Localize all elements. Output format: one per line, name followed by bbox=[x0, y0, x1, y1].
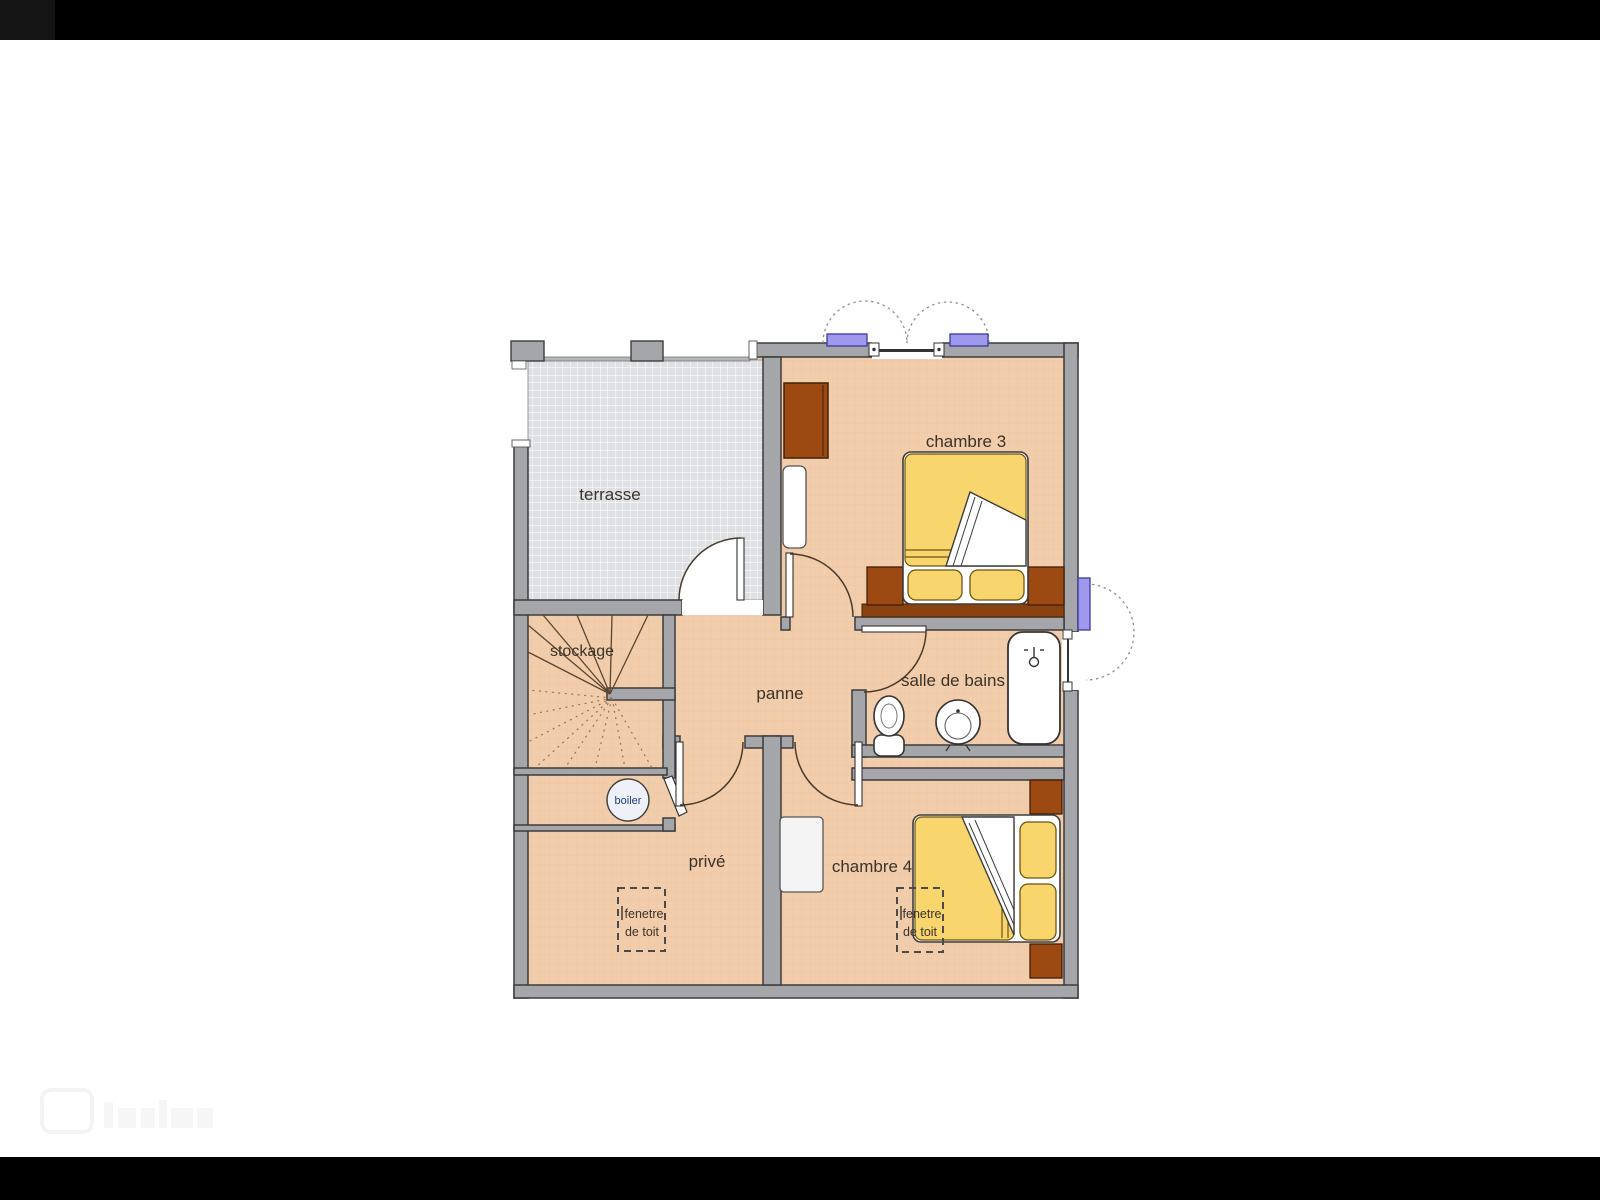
wall-stair-bottom bbox=[514, 768, 667, 775]
opening-right-door bbox=[1062, 632, 1080, 690]
label-chambre3: chambre 3 bbox=[926, 432, 1006, 451]
label-salle-de-bains: salle de bains bbox=[901, 671, 1005, 690]
wall-terrasse-chambre3-divider bbox=[763, 357, 781, 615]
dresser bbox=[783, 466, 806, 548]
bathroom-door-leaf bbox=[862, 626, 926, 632]
window-right bbox=[1078, 578, 1090, 630]
roof-window-label-line2: de toit bbox=[903, 925, 938, 939]
wall-central bbox=[763, 736, 781, 985]
terrasse-post-cap bbox=[512, 361, 526, 369]
letterbox-top-artifact bbox=[0, 0, 55, 40]
label-chambre4: chambre 4 bbox=[832, 857, 912, 876]
double-bed bbox=[903, 452, 1028, 604]
nightstand bbox=[867, 567, 903, 605]
terrasse-area bbox=[511, 341, 763, 600]
letterbox-top bbox=[0, 0, 1600, 40]
wall-left bbox=[514, 446, 528, 998]
floor-plan-canvas: fenetre de toit fenetre de toit terrasse… bbox=[0, 0, 1600, 1200]
door-hinge bbox=[1063, 682, 1072, 691]
wall-terrasse-bottom bbox=[514, 600, 682, 615]
roof-window-label-line1: fenetre bbox=[903, 907, 942, 921]
wall-right-lower bbox=[1064, 690, 1078, 998]
wall-chambre3-bottom-stub bbox=[781, 617, 790, 630]
opening-terrasse-door bbox=[682, 600, 763, 615]
label-panne: panne bbox=[756, 684, 803, 703]
wall-right-upper bbox=[1064, 343, 1078, 632]
pillow bbox=[1020, 822, 1056, 878]
balcony-door-line bbox=[879, 349, 934, 352]
wall-bottom bbox=[514, 985, 1078, 998]
letterbox-bottom bbox=[0, 1157, 1600, 1200]
pillow bbox=[970, 570, 1024, 600]
label-boiler: boiler bbox=[615, 795, 642, 807]
terrasse-post bbox=[631, 341, 663, 361]
roof-window-label-line2: de toit bbox=[625, 925, 660, 939]
wall-boiler-corner bbox=[663, 818, 675, 831]
terrasse-door-leaf bbox=[737, 538, 744, 600]
nightstand bbox=[1030, 944, 1062, 978]
wall-stair-newel bbox=[607, 688, 675, 700]
chambre3-door-leaf bbox=[786, 553, 793, 617]
right-door-swing-dotted bbox=[1086, 584, 1134, 680]
window-top-2 bbox=[950, 334, 988, 346]
prive-door-leaf bbox=[676, 742, 683, 806]
wall-cap bbox=[749, 341, 757, 359]
terrasse-railing bbox=[663, 357, 750, 361]
nightstand bbox=[1028, 567, 1064, 605]
toilet bbox=[874, 696, 904, 756]
bed-headboard bbox=[862, 604, 1064, 617]
wall-boiler-bottom bbox=[514, 825, 675, 831]
double-bed bbox=[913, 815, 1060, 942]
cabinet bbox=[780, 817, 823, 892]
wall-cap bbox=[512, 440, 530, 447]
label-stockage: stockage bbox=[550, 643, 614, 660]
pillow bbox=[908, 570, 962, 600]
roof-window-label-line1: fenetre bbox=[625, 907, 664, 921]
door-hinge bbox=[1063, 630, 1072, 639]
screenshot-stage: fenetre de toit fenetre de toit terrasse… bbox=[0, 0, 1600, 1200]
pillow bbox=[1020, 884, 1056, 940]
wall-chambre4-top bbox=[852, 768, 1064, 780]
chambre4-door-leaf bbox=[855, 742, 862, 806]
label-terrasse: terrasse bbox=[579, 485, 640, 504]
window-top-1 bbox=[827, 334, 867, 346]
label-prive: privé bbox=[689, 852, 726, 871]
watermark-logo bbox=[42, 1090, 213, 1132]
terrasse-post bbox=[511, 341, 544, 361]
wardrobe bbox=[784, 383, 828, 458]
nightstand bbox=[1030, 780, 1062, 814]
terrasse-railing bbox=[544, 357, 631, 361]
